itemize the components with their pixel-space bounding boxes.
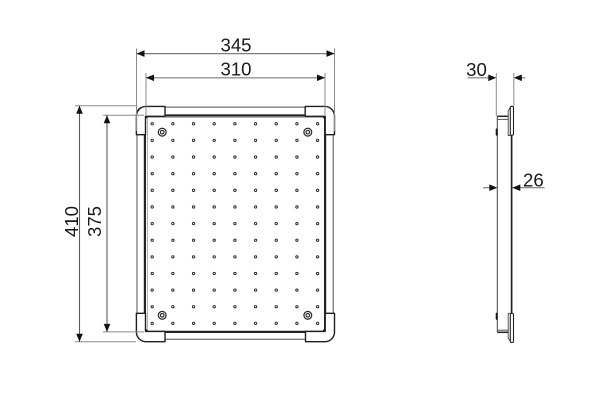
svg-text:375: 375 xyxy=(84,206,105,237)
svg-text:26: 26 xyxy=(523,169,544,190)
svg-text:410: 410 xyxy=(61,206,82,237)
svg-text:310: 310 xyxy=(220,59,251,80)
svg-text:30: 30 xyxy=(466,59,487,80)
svg-text:345: 345 xyxy=(220,34,251,55)
